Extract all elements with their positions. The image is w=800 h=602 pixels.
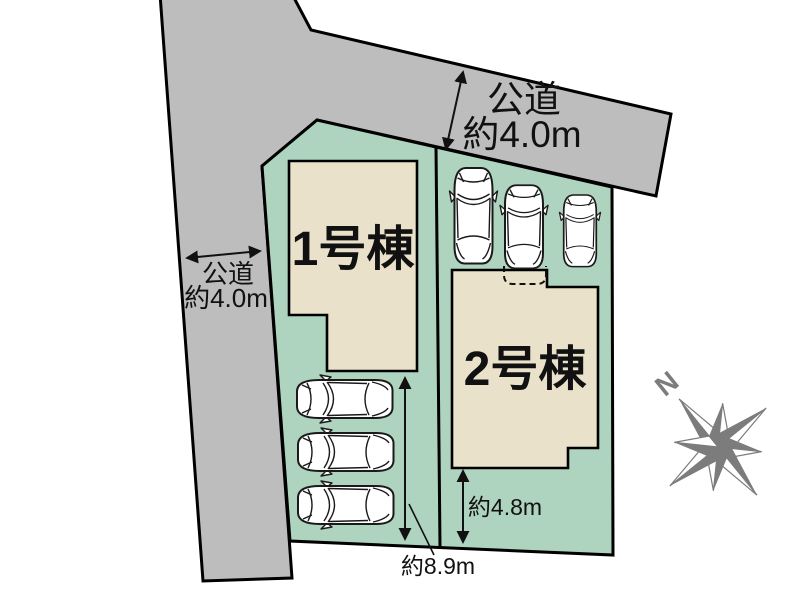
car-icon	[298, 428, 394, 476]
building-2-label: 2号棟	[464, 343, 588, 396]
dim-4-8m-label: 約4.8m	[468, 494, 542, 520]
car-icon	[450, 168, 498, 264]
car-icon	[297, 375, 393, 423]
car-icon	[559, 195, 600, 267]
road-left-width-label: 約4.0m	[184, 283, 268, 313]
road-top-width-label: 約4.0m	[462, 114, 581, 155]
car-icon	[298, 481, 394, 529]
car-icon	[500, 185, 548, 268]
dim-8-9m-label: 約8.9m	[401, 553, 475, 579]
site-plan-page: 公道 約4.0m 公道 約4.0m 1号棟 2号棟 約8.9m 約4.8m	[0, 0, 800, 602]
site-plan-svg: 公道 約4.0m 公道 約4.0m 1号棟 2号棟 約8.9m 約4.8m	[0, 0, 800, 602]
building-1-label: 1号棟	[292, 223, 416, 276]
